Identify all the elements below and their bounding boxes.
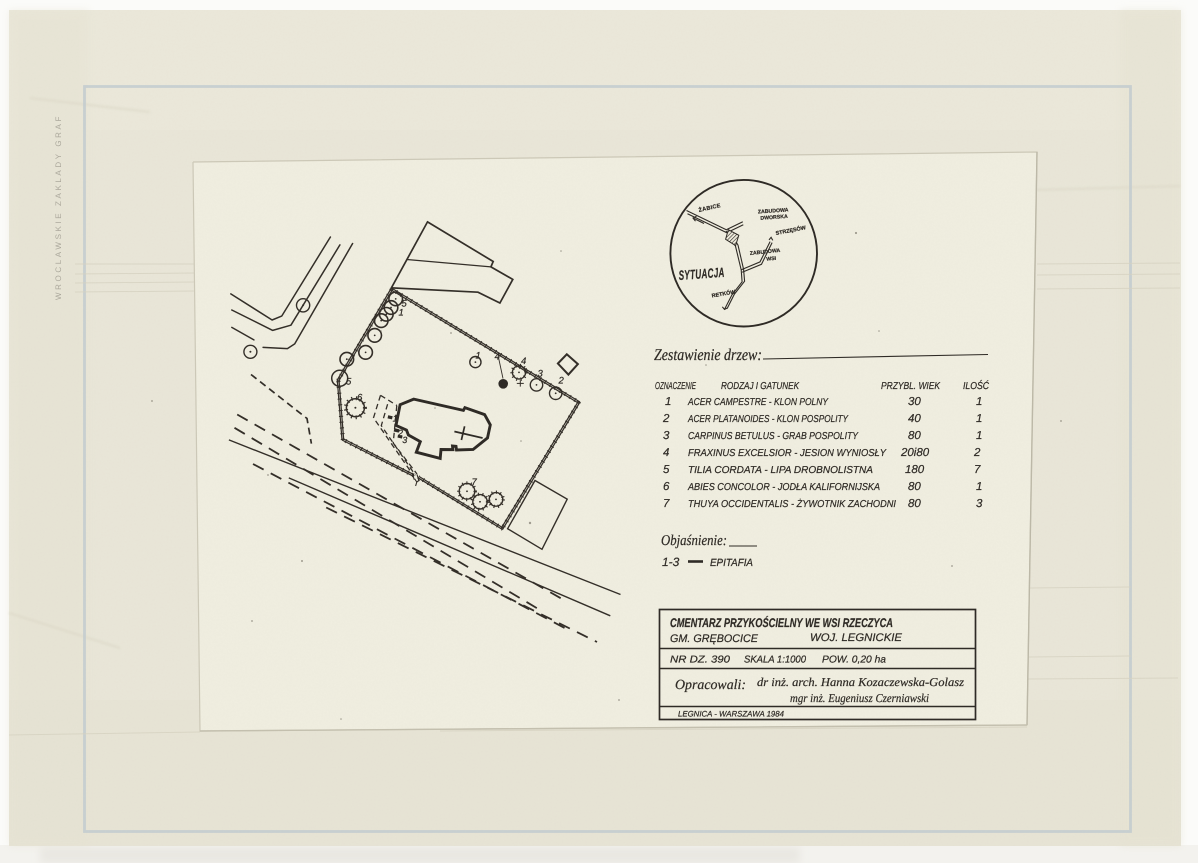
svg-text:THUYA OCCIDENTALIS - ŻYWOTNIK: THUYA OCCIDENTALIS - ŻYWOTNIK ZACHODNI [688, 498, 896, 510]
svg-text:1: 1 [476, 351, 481, 362]
svg-text:RODZAJ I GATUNEK: RODZAJ I GATUNEK [721, 381, 800, 392]
svg-text:WROCLAWSKIE ZAKLADY GRAF: WROCLAWSKIE ZAKLADY GRAF [54, 114, 63, 300]
svg-text:80: 80 [908, 430, 921, 442]
svg-text:Zestawienie drzew:: Zestawienie drzew: [654, 345, 762, 364]
svg-text:180: 180 [905, 464, 925, 476]
svg-text:7: 7 [974, 464, 981, 476]
svg-text:4: 4 [663, 447, 669, 459]
svg-text:5: 5 [346, 377, 352, 388]
svg-text:NR DZ. 390: NR DZ. 390 [670, 655, 730, 666]
svg-text:3: 3 [538, 369, 544, 380]
svg-text:OZNACZENIE: OZNACZENIE [655, 381, 696, 392]
svg-text:20i80: 20i80 [900, 447, 930, 459]
svg-text:ABIES CONCOLOR - JODŁA KALIFO: ABIES CONCOLOR - JODŁA KALIFORNIJSKA [687, 482, 880, 493]
svg-text:2: 2 [558, 376, 565, 387]
svg-text:1: 1 [976, 430, 982, 442]
svg-text:1: 1 [665, 396, 671, 408]
svg-text:Objaśnienie:: Objaśnienie: [661, 533, 727, 549]
svg-text:3: 3 [402, 435, 407, 445]
svg-text:SKALA 1:1000: SKALA 1:1000 [744, 655, 806, 666]
svg-text:1: 1 [976, 413, 982, 425]
svg-text:ACER CAMPESTRE - KLON POLNY: ACER CAMPESTRE - KLON POLNY [687, 397, 829, 408]
svg-text:1: 1 [393, 414, 398, 424]
svg-text:7: 7 [663, 498, 670, 510]
svg-text:LEGNICA - WARSZAWA 1984: LEGNICA - WARSZAWA 1984 [678, 710, 785, 719]
svg-text:3: 3 [976, 498, 983, 510]
svg-text:6: 6 [663, 481, 670, 493]
svg-text:CARPINUS BETULUS - GRAB POSPOL: CARPINUS BETULUS - GRAB POSPOLITY [688, 431, 859, 442]
svg-text:1: 1 [976, 396, 982, 408]
svg-text:4: 4 [495, 352, 500, 363]
svg-text:1: 1 [399, 308, 404, 319]
svg-text:6: 6 [357, 393, 363, 404]
svg-text:4: 4 [521, 356, 526, 367]
svg-text:ILOŚĆ: ILOŚĆ [963, 380, 990, 392]
svg-text:1: 1 [976, 481, 982, 493]
svg-text:TILIA CORDATA - LIPA DROBNOL: TILIA CORDATA - LIPA DROBNOLISTNA [688, 465, 873, 476]
svg-text:dr inż. arch. Hanna Kozaczewsk: dr inż. arch. Hanna Kozaczewska-Golasz [757, 675, 964, 689]
svg-text:80: 80 [908, 498, 921, 510]
svg-text:Opracowali:: Opracowali: [675, 678, 746, 693]
svg-text:mgr inż. Eugeniusz Czerniawski: mgr inż. Eugeniusz Czerniawski [790, 691, 929, 705]
svg-text:EPITAFIA: EPITAFIA [710, 557, 753, 569]
svg-text:2: 2 [973, 447, 981, 459]
svg-text:3: 3 [663, 430, 670, 442]
svg-text:PRZYBL. WIEK: PRZYBL. WIEK [881, 381, 941, 392]
svg-text:40: 40 [908, 413, 921, 425]
svg-text:WSI: WSI [766, 256, 777, 263]
svg-text:5: 5 [663, 464, 670, 476]
svg-text:2: 2 [662, 413, 670, 425]
svg-text:GM. GRĘBOCICE: GM. GRĘBOCICE [670, 633, 759, 645]
svg-text:SYTUACJA: SYTUACJA [678, 265, 725, 283]
svg-text:1-3: 1-3 [662, 555, 680, 569]
svg-text:30: 30 [908, 396, 921, 408]
svg-text:POW. 0,20 ha: POW. 0,20 ha [822, 655, 886, 666]
svg-text:CMENTARZ PRZYKOŚCIELNY WE WSI: CMENTARZ PRZYKOŚCIELNY WE WSI RZECZYCA [670, 615, 893, 630]
svg-text:7: 7 [472, 477, 478, 488]
svg-text:WOJ. LEGNICKIE: WOJ. LEGNICKIE [810, 632, 903, 644]
svg-text:80: 80 [908, 481, 921, 493]
svg-text:FRAXINUS EXCELSIOR - JESION WY: FRAXINUS EXCELSIOR - JESION WYNIOSŁY [688, 448, 887, 459]
svg-text:ACER PLATANOIDES - KLON POSPOL: ACER PLATANOIDES - KLON POSPOLITY [687, 414, 849, 425]
